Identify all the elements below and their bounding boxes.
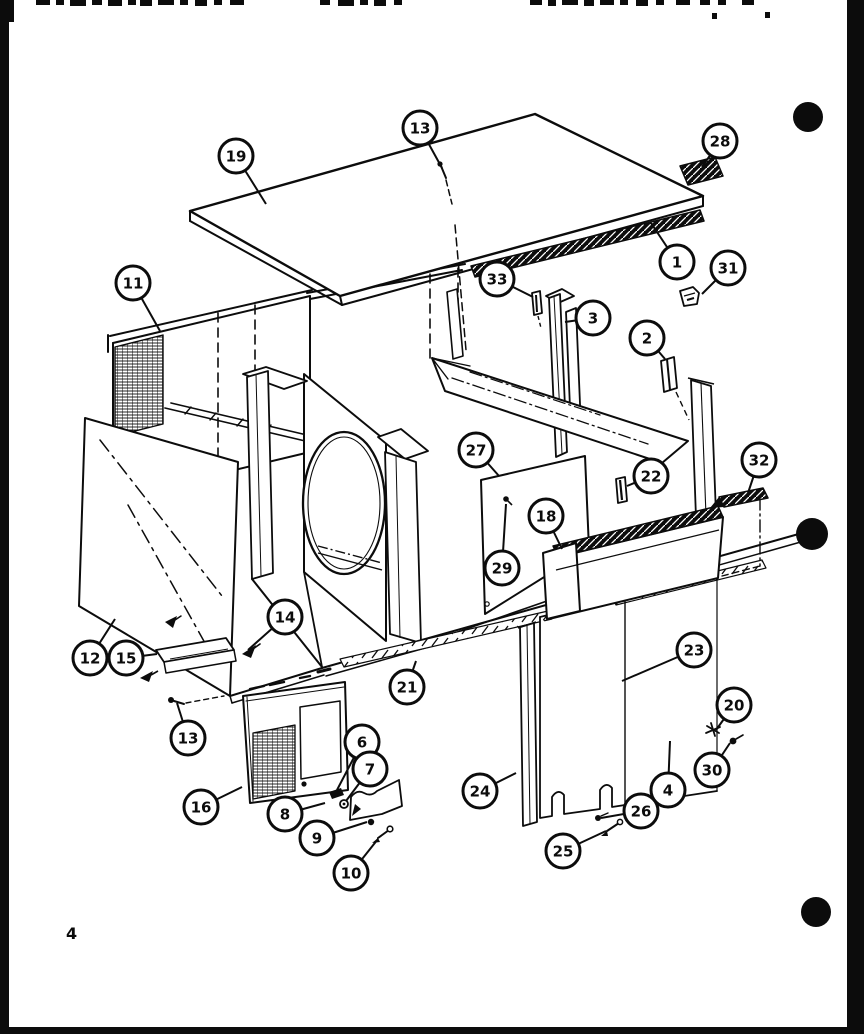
callout-number: 18 — [536, 507, 557, 525]
callout-number: 7 — [365, 760, 375, 778]
callout-number: 13 — [410, 119, 431, 137]
partition-column-left — [243, 367, 307, 579]
left-edge-bar — [0, 0, 9, 1034]
callout-number: 20 — [724, 696, 745, 714]
callout-10: 10 — [334, 839, 378, 890]
callout-number: 4 — [663, 781, 673, 799]
callout-number: 32 — [749, 451, 770, 469]
callout-9: 9 — [300, 821, 367, 855]
parts-manual-page: 1913281311133322722321829121514212313203… — [0, 0, 864, 1034]
callout-12: 12 — [73, 619, 115, 675]
callout-number: 30 — [702, 761, 723, 779]
callout-number: 19 — [226, 147, 247, 165]
callout-number: 33 — [487, 270, 508, 288]
callout-28: 28 — [702, 124, 737, 167]
callout-number: 8 — [280, 805, 290, 823]
callout-number: 23 — [684, 641, 705, 659]
callout-number: 10 — [341, 864, 362, 882]
callout-number: 2 — [642, 329, 652, 347]
callout-number: 15 — [116, 649, 137, 667]
callout-33: 33 — [480, 262, 533, 297]
callout-19: 19 — [219, 139, 266, 204]
channel-24 — [518, 622, 537, 826]
callout-number: 25 — [553, 842, 574, 860]
fastener-9 — [368, 819, 374, 825]
callout-26: 26 — [601, 794, 658, 828]
callout-32: 32 — [742, 443, 776, 493]
callout-number: 11 — [123, 274, 144, 292]
clip-part-2 — [661, 357, 689, 420]
callout-number: 21 — [397, 678, 418, 696]
clip-part-28 — [680, 157, 723, 185]
rivet-26 — [595, 815, 601, 821]
callout-21: 21 — [390, 661, 424, 704]
callout-number: 14 — [275, 608, 296, 626]
exploded-parts-diagram: 1913281311133322722321829121514212313203… — [0, 0, 864, 1034]
bracket-22 — [616, 477, 627, 503]
top-panel — [190, 114, 704, 350]
callout-27: 27 — [459, 433, 499, 476]
callout-number: 31 — [718, 259, 739, 277]
clip-part-33 — [532, 291, 542, 328]
binder-dot — [801, 897, 831, 927]
callout-number: 26 — [631, 802, 652, 820]
bottom-edge-bar — [0, 1027, 864, 1034]
callout-number: 3 — [588, 309, 598, 327]
screw-13 — [168, 697, 174, 703]
callout-20: 20 — [716, 688, 751, 730]
callout-30: 30 — [695, 743, 730, 787]
callout-11: 11 — [116, 266, 160, 331]
screw-25 — [607, 823, 619, 831]
callout-number: 13 — [178, 729, 199, 747]
clip-part-31 — [680, 287, 699, 306]
callout-24: 24 — [463, 773, 516, 808]
callout-16: 16 — [184, 787, 242, 824]
binder-dot — [796, 518, 828, 550]
callout-22: 22 — [627, 459, 668, 493]
blower-partition — [303, 374, 386, 667]
callout-1: 1 — [651, 223, 694, 279]
callout-number: 16 — [191, 798, 212, 816]
callout-25: 25 — [546, 831, 606, 868]
cropped-text-artifacts — [36, 0, 770, 19]
callout-number: 24 — [470, 782, 491, 800]
binder-dots — [793, 102, 831, 927]
screw-14 — [242, 645, 256, 658]
callout-number: 12 — [80, 649, 101, 667]
callout-13: 13 — [171, 703, 205, 755]
callout-2: 2 — [630, 321, 665, 359]
callout-31: 31 — [702, 251, 745, 294]
callout-14: 14 — [248, 600, 302, 650]
callout-23: 23 — [622, 633, 711, 681]
right-edge-bar — [847, 0, 864, 1034]
callout-number: 1 — [672, 253, 682, 271]
callout-number: 28 — [710, 132, 731, 150]
page-number: 4 — [66, 924, 77, 943]
callout-number: 6 — [357, 733, 367, 751]
louver-mesh — [253, 725, 295, 799]
callout-number: 27 — [466, 441, 487, 459]
callout-number: 29 — [492, 559, 513, 577]
callout-number: 9 — [312, 829, 322, 847]
binder-dot — [793, 102, 823, 132]
panel-door — [300, 701, 341, 779]
callout-number: 22 — [641, 467, 662, 485]
